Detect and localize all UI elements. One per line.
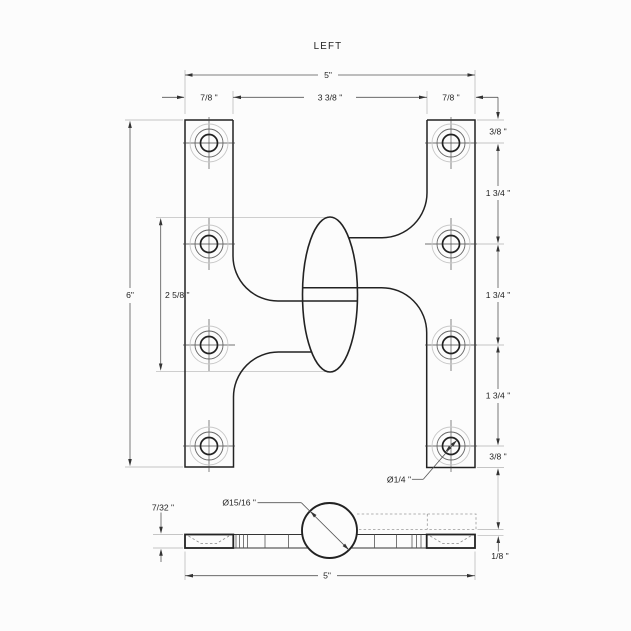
- dim-leaf-height: 6": [126, 290, 134, 300]
- drawing-title: LEFT: [314, 41, 343, 52]
- dim-center-gap: 3 3/8 ": [318, 92, 343, 102]
- dim-knuckle-length: 2 5/8 ": [165, 290, 190, 300]
- dim-knuckle-diameter: Ø15/16 ": [222, 498, 256, 508]
- screw-hole: [425, 420, 477, 472]
- side-view: 7/32 " Ø15/16 " 5" 1/8 ": [152, 498, 509, 581]
- dim-hole-to-bottom-edge: 3/8 ": [489, 452, 506, 462]
- dim-hole-spacing-lower: 1 3/4 ": [486, 391, 511, 401]
- dim-left-leaf-width: 7/8 ": [200, 92, 217, 102]
- dim-overall-width-top: 5": [324, 70, 332, 80]
- screw-hole: [183, 218, 235, 270]
- right-leaf-upper-edge: [349, 120, 427, 238]
- front-view: 5" 7/8 " 3 3/8 " 7/8 " 6" 2 5/8 " 3/8 " …: [125, 70, 510, 523]
- dim-leaf-thickness: 7/32 ": [152, 503, 174, 513]
- screw-hole: [425, 218, 477, 270]
- dim-screw-hole-diameter: Ø1/4 ": [387, 474, 411, 484]
- dim-leaf-offset-gap: 1/8 ": [491, 551, 508, 561]
- left-leaf-upper-edge: [233, 120, 358, 301]
- screw-hole: [183, 117, 235, 169]
- left-leaf: [185, 120, 358, 467]
- right-leaf-hidden-outline: [357, 514, 476, 530]
- olive-knuckle: [303, 217, 358, 372]
- screw-holes: [183, 117, 477, 472]
- dim-hole-spacing-middle: 1 3/4 ": [486, 290, 511, 300]
- screw-hole: [183, 319, 235, 371]
- dim-overall-width-bottom: 5": [323, 571, 331, 581]
- dim-right-leaf-width: 7/8 ": [442, 92, 459, 102]
- right-leaf: [303, 120, 475, 468]
- screw-hole: [425, 319, 477, 371]
- dim-hole-spacing-upper: 1 3/4 ": [486, 188, 511, 198]
- left-plate-section: [185, 535, 233, 549]
- left-leaf-outline: [185, 120, 312, 467]
- screw-hole: [183, 420, 235, 472]
- screw-hole: [425, 117, 477, 169]
- technical-drawing-page: LEFT: [0, 0, 631, 631]
- front-dimension-labels: 5" 7/8 " 3 3/8 " 7/8 " 6" 2 5/8 " 3/8 " …: [126, 70, 510, 484]
- right-plate-section: [427, 535, 475, 549]
- right-leaf-outline: [303, 120, 475, 468]
- dim-top-edge-to-hole: 3/8 ": [489, 127, 506, 137]
- hinge-drawing: LEFT: [0, 0, 631, 631]
